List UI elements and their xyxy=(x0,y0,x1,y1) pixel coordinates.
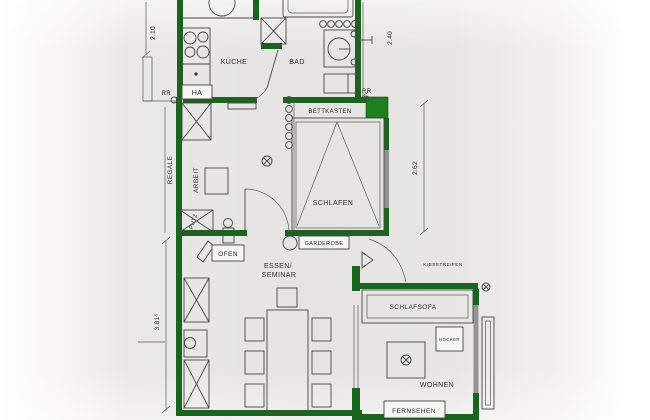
room-label-bedbox: BETTKASTEN xyxy=(308,109,351,115)
furniture-label-tv: FERNSEHEN xyxy=(392,408,436,415)
kitchen-sink xyxy=(209,0,235,16)
chair xyxy=(312,318,331,341)
furniture-label-work: ARBEIT xyxy=(193,167,200,193)
bedroom-fixtures xyxy=(283,97,384,250)
room-label-dining-2: SEMINAR xyxy=(262,272,297,279)
room-label-bath: BAD xyxy=(289,59,305,66)
bath-door xyxy=(267,50,278,88)
dining-fixtures xyxy=(184,278,331,412)
dining-table xyxy=(267,310,308,412)
chair xyxy=(245,384,264,407)
furniture-label-oven: OFEN xyxy=(218,251,238,258)
chair xyxy=(245,318,264,341)
bathtub xyxy=(283,0,353,17)
chair xyxy=(312,384,331,407)
chair xyxy=(245,351,264,374)
dimension-kitchen-width: 2.10 xyxy=(150,26,157,40)
kitchen-fixtures xyxy=(171,0,256,140)
room-label-bedroom: SCHLAFEN xyxy=(313,200,354,207)
chair xyxy=(312,351,331,374)
dimension-bath-depth: 2.40 xyxy=(387,31,394,45)
wall-pier-green xyxy=(366,97,388,118)
bed xyxy=(292,118,384,232)
floor-plan-drawing: 2.10 2.40 2.62 3.81⁵ xyxy=(0,0,650,420)
bath-sink xyxy=(324,74,358,93)
room-label-kitchen: KÜCHE xyxy=(221,58,248,66)
bench-diagonal xyxy=(197,241,214,262)
outside-window xyxy=(482,317,494,409)
chair-head xyxy=(277,288,297,307)
label-ha: HA xyxy=(192,90,203,97)
washing-machine xyxy=(324,30,358,67)
bedroom-window xyxy=(384,150,389,208)
living-door-arc xyxy=(369,239,406,282)
room-label-living: WOHNEN xyxy=(420,382,454,389)
furniture-label-shelves: REGALE xyxy=(167,155,174,184)
desk xyxy=(205,168,228,194)
furniture-label-sofa: SCHLAFSOFA xyxy=(390,304,437,311)
living-window-wall xyxy=(474,305,479,393)
door-triangle xyxy=(362,252,373,268)
kitchen-shelf xyxy=(228,103,256,109)
label-rr-left: RR xyxy=(162,91,172,97)
floor-plan-photo: 2.10 2.40 2.62 3.81⁵ xyxy=(0,0,650,420)
dimension-dining-depth: 3.81⁵ xyxy=(154,313,161,330)
room-label-dining-1: ESSEN/ xyxy=(264,263,292,270)
dimension-bedroom-depth: 2.62 xyxy=(412,161,419,175)
label-rr-right: RR xyxy=(362,89,372,95)
furniture-label-stool: HOCKER xyxy=(439,337,460,342)
label-gravel-strip: KIESSTREIFEN xyxy=(423,262,463,268)
room-label-wardrobe: GARDEROBE xyxy=(305,241,344,247)
bath-fixtures xyxy=(255,0,372,102)
